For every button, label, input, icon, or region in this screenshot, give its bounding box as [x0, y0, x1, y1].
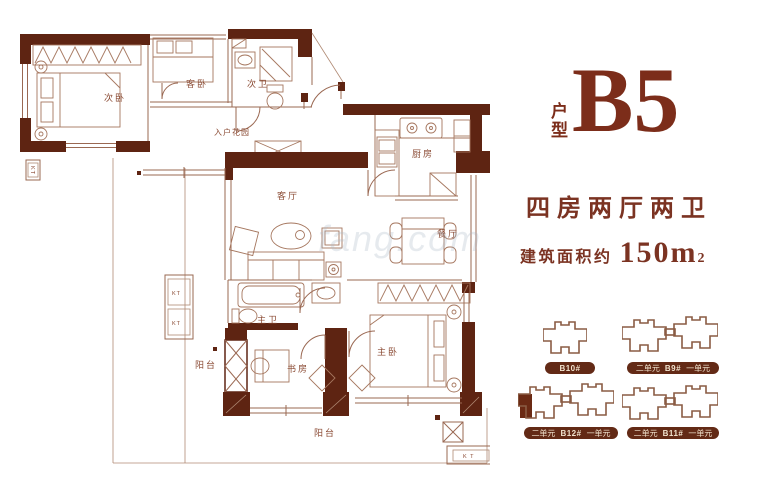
entry-garden: 入户花园	[214, 33, 345, 161]
building-pill-b11[interactable]: 二单元 B11# 一单元	[627, 427, 719, 439]
building-icon-b11[interactable]	[622, 385, 718, 425]
wall-dot	[213, 347, 217, 351]
building-left-label: 二单元	[531, 428, 555, 439]
room-ciwo: 次卧	[20, 34, 150, 152]
floorplan-page: 次卧 客卧	[0, 0, 770, 500]
area-value: 150m	[620, 236, 698, 270]
building-name: B12#	[560, 429, 581, 438]
building-name: B9#	[665, 364, 681, 373]
ac-label-mid-1: KT	[172, 291, 181, 297]
building-pill-b12[interactable]: 二单元 B12# 一单元	[524, 427, 618, 439]
bed-kewo	[153, 38, 213, 82]
room-label-ciwo: 次卧	[104, 92, 126, 103]
ac-unit-mid: KT KT	[165, 275, 193, 339]
room-keting: 客厅	[143, 152, 368, 280]
balcony-left: 阳台	[195, 359, 217, 370]
building-right-label: 一单元	[688, 428, 712, 439]
room-label-zhuwo: 主卧	[377, 346, 399, 357]
building-left-label: 二单元	[634, 428, 658, 439]
ac-unit-bottom-right: K T	[435, 415, 490, 464]
room-shufang: 书房	[223, 328, 375, 416]
room-zhuwo: 主卧	[347, 280, 482, 416]
building-icon-b12[interactable]	[518, 383, 614, 425]
toilet-zhuwei	[232, 309, 257, 323]
room-label-chufang: 厨房	[412, 148, 434, 159]
building-left-label: 二单元	[636, 363, 660, 374]
layout-spec: 四房两厅两卫	[526, 188, 712, 223]
room-label-shufang: 书房	[287, 363, 309, 374]
room-kewo: 客卧	[150, 35, 232, 107]
building-name: B11#	[663, 429, 684, 438]
building-name: B10#	[559, 364, 580, 373]
area-spec: 建筑面积约 150m 2	[520, 236, 705, 270]
room-label-yangtai-left: 阳台	[195, 359, 217, 370]
building-pill-b10[interactable]: B10#	[545, 362, 595, 374]
area-label: 建筑面积约	[520, 243, 613, 267]
sofa	[248, 252, 324, 280]
building-icon-b9[interactable]	[622, 316, 718, 358]
ac-label-bottom: K T	[463, 454, 474, 460]
bathtub	[238, 283, 304, 307]
area-exponent: 2	[698, 251, 705, 267]
building-right-label: 一单元	[686, 363, 710, 374]
room-ciwei: 次卫	[228, 29, 312, 131]
ac-label-left: KT	[29, 166, 35, 175]
building-icon-b10[interactable]	[543, 320, 587, 358]
watermark: fang.com	[318, 218, 482, 260]
unit-type-prefix: 户型	[551, 102, 569, 140]
room-zhuwei: 主卫	[228, 280, 340, 330]
room-label-yangtai-bottom: 阳台	[314, 427, 336, 438]
room-label-zhuwei: 主卫	[257, 314, 279, 325]
room-label-ciwei: 次卫	[247, 78, 269, 89]
room-label-ruhua: 入户花园	[214, 127, 250, 137]
building-pill-b9[interactable]: 二单元 B9# 一单元	[627, 362, 719, 374]
ac-label-mid-2: KT	[172, 321, 181, 327]
room-label-keting: 客厅	[277, 190, 299, 201]
balcony-bottom: 阳台	[314, 427, 336, 438]
building-right-label: 一单元	[587, 428, 611, 439]
wall-dot	[137, 171, 141, 175]
room-label-kewo: 客卧	[186, 78, 208, 89]
unit-type-name: B5	[572, 54, 679, 146]
ac-unit-left: KT	[26, 160, 40, 180]
